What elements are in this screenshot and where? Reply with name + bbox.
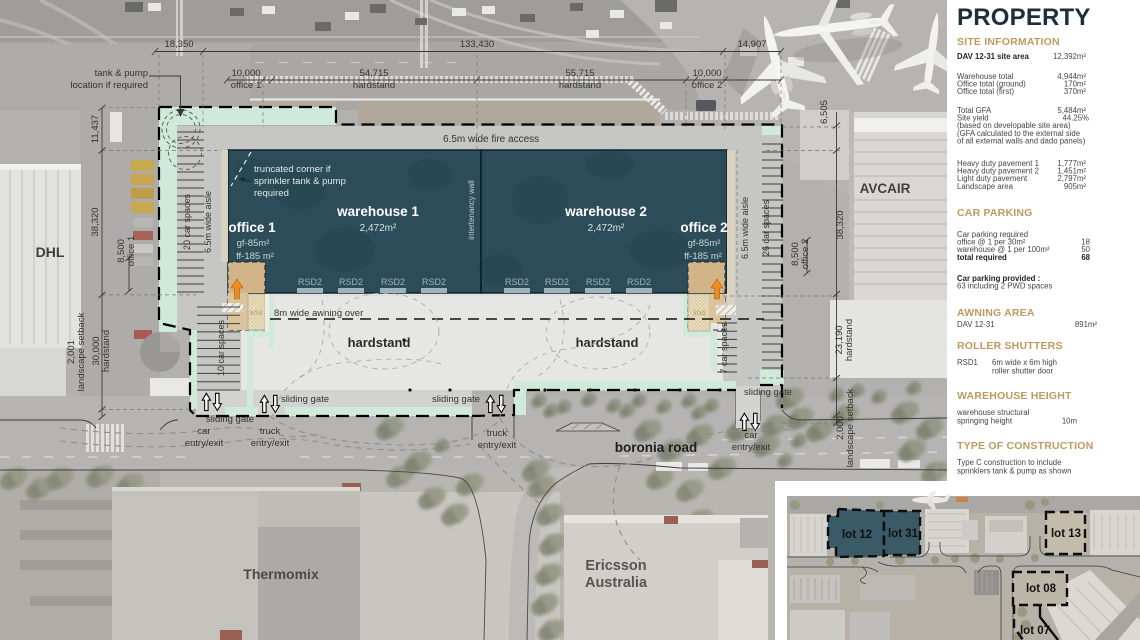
svg-text:office 1: office 1: [228, 220, 276, 235]
svg-text:warehouse 2: warehouse 2: [564, 204, 647, 219]
svg-text:office 1: office 1: [231, 80, 261, 91]
svg-text:DAV 12-31 site area: DAV 12-31 site area: [957, 52, 1029, 61]
svg-text:hardstand: hardstand: [844, 319, 855, 361]
svg-text:AVCAIR: AVCAIR: [860, 181, 911, 196]
svg-text:hardstand: hardstand: [576, 335, 639, 350]
svg-text:office 2: office 2: [692, 80, 722, 91]
svg-text:entry/exit: entry/exit: [251, 438, 290, 449]
svg-text:entry/exit: entry/exit: [478, 440, 517, 451]
svg-text:Landscape area: Landscape area: [957, 182, 1014, 191]
svg-text:office 2: office 2: [800, 239, 811, 269]
svg-text:soa: soa: [693, 308, 706, 317]
svg-text:RSD2: RSD2: [586, 277, 610, 287]
svg-text:10,000: 10,000: [231, 68, 260, 79]
svg-text:office 2: office 2: [680, 220, 727, 235]
svg-text:14,907: 14,907: [737, 39, 766, 50]
svg-text:lot 07: lot 07: [1020, 625, 1050, 637]
svg-text:sliding gate: sliding gate: [281, 394, 329, 405]
svg-text:133,430: 133,430: [460, 39, 494, 50]
svg-text:gf-85m²: gf-85m²: [237, 238, 270, 249]
svg-text:8m wide awning over: 8m wide awning over: [274, 308, 363, 319]
svg-text:6.5m wide aisle: 6.5m wide aisle: [203, 191, 213, 253]
svg-text:office 1: office 1: [126, 236, 137, 266]
svg-text:6,505: 6,505: [819, 100, 830, 124]
svg-text:truck: truck: [487, 428, 508, 439]
svg-text:891m²: 891m²: [1075, 320, 1098, 329]
svg-text:RSD2: RSD2: [339, 277, 363, 287]
svg-text:RSD2: RSD2: [545, 277, 569, 287]
svg-text:entry/exit: entry/exit: [732, 442, 771, 453]
svg-text:sliding gate: sliding gate: [744, 387, 792, 398]
svg-text:RSD2: RSD2: [381, 277, 405, 287]
svg-text:RSD1: RSD1: [957, 358, 978, 367]
svg-text:required: required: [254, 188, 289, 199]
svg-text:landscape setback: landscape setback: [76, 312, 87, 391]
svg-text:lot 13: lot 13: [1051, 528, 1081, 540]
svg-text:lot 12: lot 12: [842, 529, 872, 541]
svg-text:TYPE OF CONSTRUCTION: TYPE OF CONSTRUCTION: [957, 440, 1093, 452]
svg-text:boronia road: boronia road: [615, 440, 698, 455]
svg-text:of all external walls and dado: of all external walls and dado panels): [957, 136, 1086, 145]
svg-text:RSD2: RSD2: [505, 277, 529, 287]
svg-text:10m: 10m: [1062, 417, 1077, 426]
svg-text:hardstand: hardstand: [559, 80, 601, 91]
svg-text:truncated corner if: truncated corner if: [254, 164, 331, 175]
svg-text:905m²: 905m²: [1064, 182, 1087, 191]
svg-text:PROPERTY: PROPERTY: [957, 4, 1091, 31]
svg-text:sliding gate: sliding gate: [206, 414, 254, 425]
svg-text:7 car spaces: 7 car spaces: [719, 322, 729, 374]
svg-text:hardstand: hardstand: [348, 335, 411, 350]
svg-text:car: car: [197, 426, 210, 437]
svg-text:lot 08: lot 08: [1026, 583, 1057, 595]
svg-text:soa: soa: [250, 308, 263, 317]
svg-text:truck: truck: [260, 426, 281, 437]
svg-text:DHL: DHL: [36, 244, 65, 260]
svg-text:location if required: location if required: [70, 80, 148, 91]
svg-text:sprinklers tank & pump as show: sprinklers tank & pump as shown: [957, 467, 1071, 476]
svg-text:warehouse 1: warehouse 1: [336, 204, 419, 219]
svg-text:Office total (first): Office total (first): [957, 87, 1014, 96]
svg-text:20 car spaces: 20 car spaces: [182, 193, 192, 250]
svg-text:hardstand: hardstand: [353, 80, 395, 91]
svg-text:SITE INFORMATION: SITE INFORMATION: [957, 36, 1060, 48]
svg-text:AWNING AREA: AWNING AREA: [957, 307, 1035, 319]
svg-text:6.5m wide fire access: 6.5m wide fire access: [443, 134, 539, 145]
svg-text:10,000: 10,000: [692, 68, 721, 79]
svg-text:gf-85m²: gf-85m²: [688, 238, 721, 249]
svg-text:ff-185 m²: ff-185 m²: [236, 251, 274, 262]
svg-text:18,350: 18,350: [164, 39, 193, 50]
svg-text:2,472m²: 2,472m²: [360, 223, 397, 234]
svg-text:roller shutter door: roller shutter door: [992, 367, 1054, 376]
svg-text:WAREHOUSE HEIGHT: WAREHOUSE HEIGHT: [957, 390, 1072, 402]
svg-text:sprinkler tank & pump: sprinkler tank & pump: [254, 176, 346, 187]
svg-text:landscape setback: landscape setback: [845, 388, 856, 467]
svg-text:38,320: 38,320: [835, 210, 846, 239]
svg-text:CAR PARKING: CAR PARKING: [957, 207, 1033, 219]
svg-text:38,320: 38,320: [90, 207, 101, 236]
svg-text:54,715: 54,715: [359, 68, 388, 79]
svg-text:10 car spaces: 10 car spaces: [216, 319, 226, 376]
svg-text:RSD2: RSD2: [298, 277, 322, 287]
svg-text:RSD2: RSD2: [422, 277, 446, 287]
svg-text:2,472m²: 2,472m²: [588, 223, 625, 234]
svg-text:entry/exit: entry/exit: [185, 438, 224, 449]
svg-text:DAV 12-31: DAV 12-31: [957, 320, 995, 329]
svg-text:11,437: 11,437: [90, 115, 101, 143]
svg-text:total required: total required: [957, 253, 1007, 262]
svg-text:63 including 2 PWD spaces: 63 including 2 PWD spaces: [957, 282, 1052, 291]
svg-text:68: 68: [1081, 253, 1090, 262]
svg-text:370m²: 370m²: [1064, 87, 1087, 96]
svg-text:car: car: [744, 430, 757, 441]
svg-text:intertenancy wall: intertenancy wall: [467, 180, 476, 240]
svg-text:sliding gate: sliding gate: [432, 394, 480, 405]
svg-text:ff-185 m²: ff-185 m²: [684, 251, 722, 262]
svg-text:12,392m²: 12,392m²: [1053, 52, 1086, 61]
svg-text:hardstand: hardstand: [101, 330, 112, 372]
svg-text:26 car spaces: 26 car spaces: [761, 199, 771, 256]
svg-text:lot 31: lot 31: [888, 528, 919, 540]
svg-text:6.5m wide aisle: 6.5m wide aisle: [740, 197, 750, 259]
svg-text:55,715: 55,715: [565, 68, 594, 79]
svg-text:RSD2: RSD2: [627, 277, 651, 287]
svg-text:ROLLER SHUTTERS: ROLLER SHUTTERS: [957, 340, 1063, 352]
svg-text:springing height: springing height: [957, 417, 1013, 426]
svg-text:tank & pump: tank & pump: [95, 68, 148, 79]
